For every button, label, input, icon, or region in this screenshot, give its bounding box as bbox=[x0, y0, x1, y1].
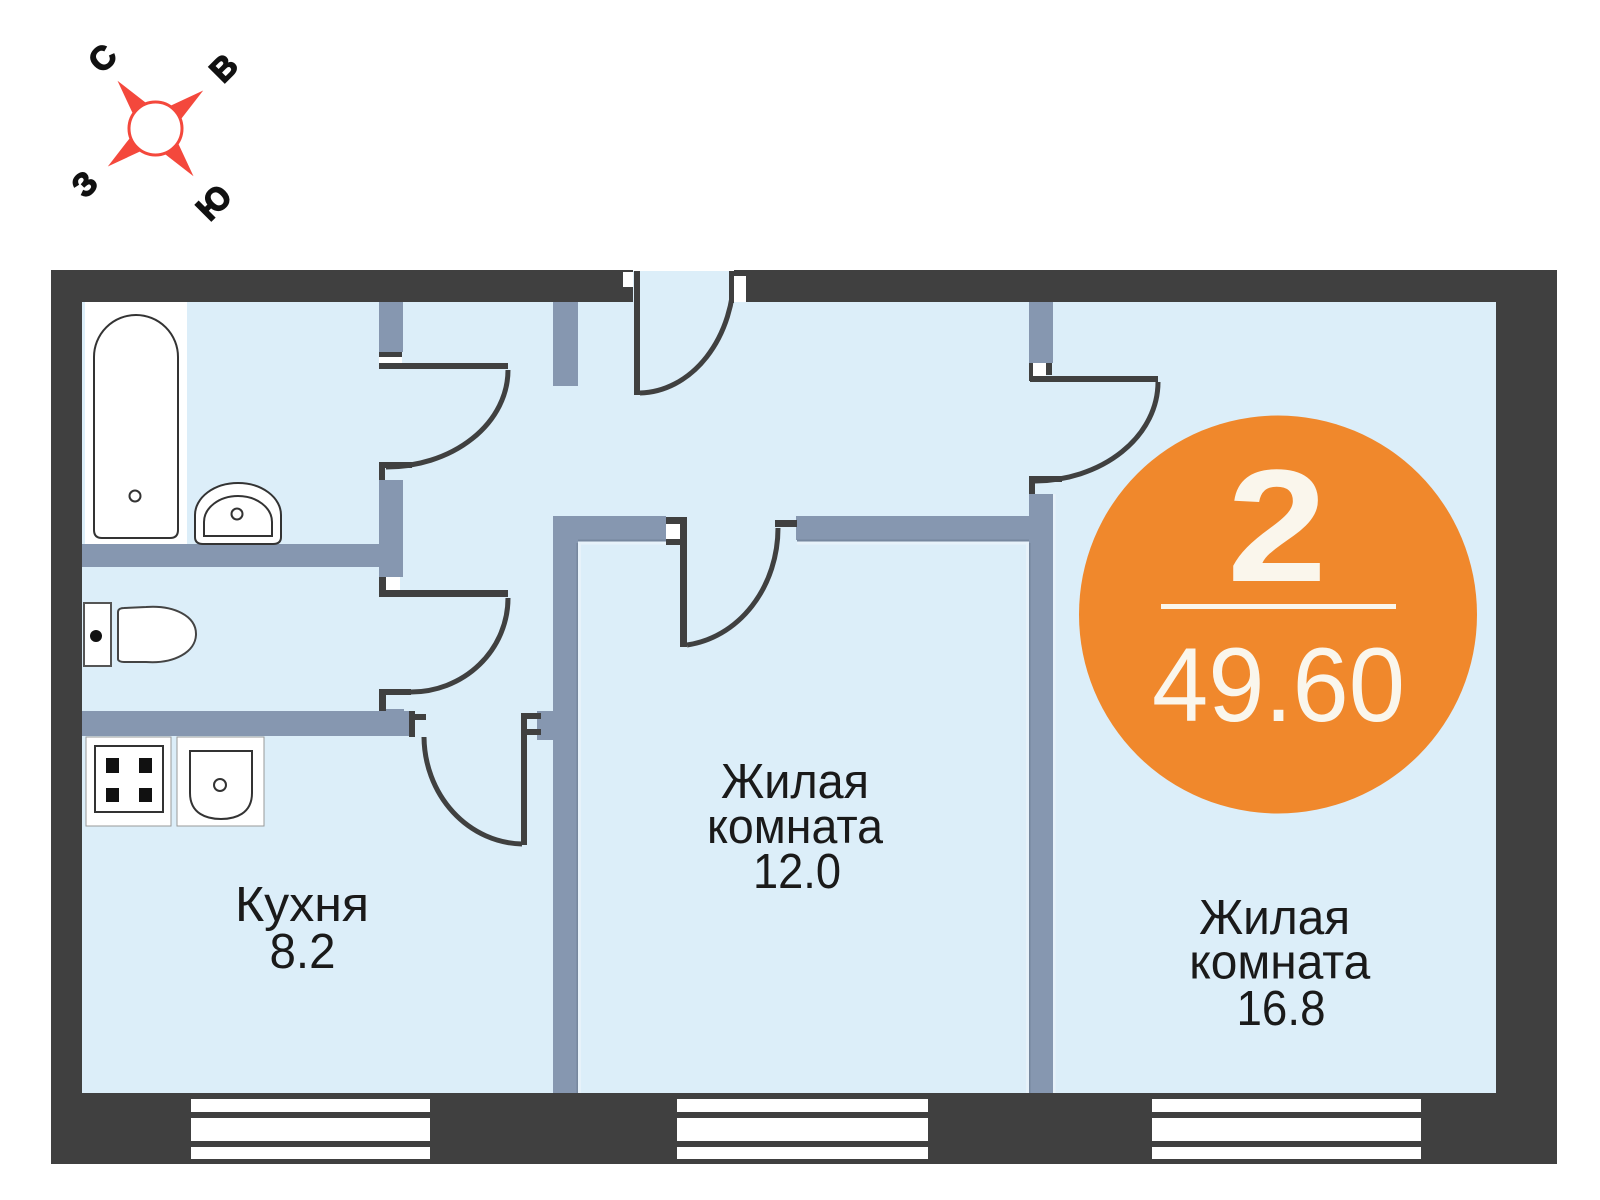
svg-text:16.8: 16.8 bbox=[1237, 982, 1326, 1036]
svg-text:12.0: 12.0 bbox=[753, 845, 841, 899]
svg-text:Кухня: Кухня bbox=[235, 878, 369, 932]
svg-text:2: 2 bbox=[1227, 436, 1327, 615]
svg-text:49.60: 49.60 bbox=[1152, 627, 1405, 744]
svg-text:8.2: 8.2 bbox=[270, 925, 336, 979]
